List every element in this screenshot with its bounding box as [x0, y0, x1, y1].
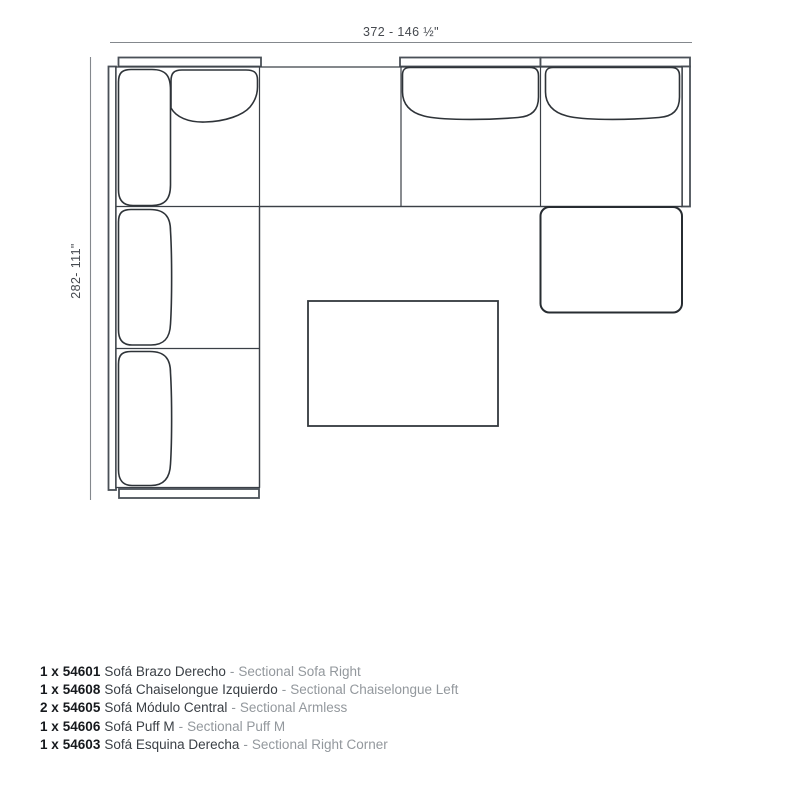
- left-module-back-cushion-1: [119, 210, 172, 346]
- part-name-en: Sectional Puff M: [187, 719, 285, 734]
- part-separator: -: [179, 719, 184, 734]
- part-name-en: Sectional Right Corner: [252, 737, 388, 752]
- corner-module-back-frame: [119, 58, 262, 67]
- part-name-en: Sectional Armless: [240, 700, 347, 715]
- part-name-es: Sofá Esquina Derecha: [104, 737, 239, 752]
- part-separator: -: [231, 700, 236, 715]
- chaiselongue-module-back-frame: [541, 58, 691, 67]
- part-separator: -: [282, 682, 287, 697]
- part-qty: 2 x: [40, 700, 59, 715]
- part-list-item: 2 x54605Sofá Módulo Central-Sectional Ar…: [40, 699, 462, 717]
- part-list-item: 1 x54603Sofá Esquina Derecha-Sectional R…: [40, 736, 462, 754]
- chaiselongue-seat-extension: [541, 207, 683, 313]
- part-list-item: 1 x54606Sofá Puff M-Sectional Puff M: [40, 718, 462, 736]
- right-side-frame: [682, 67, 690, 207]
- part-qty: 1 x: [40, 719, 59, 734]
- part-code: 54603: [63, 737, 101, 752]
- parts-list: 1 x54601Sofá Brazo Derecho-Sectional Sof…: [40, 663, 462, 754]
- top-dimension-label: 372 - 146 ½": [363, 25, 439, 39]
- left-module-back-cushion-2: [119, 352, 172, 486]
- part-code: 54606: [63, 719, 101, 734]
- sofa-top-view-diagram: 372 - 146 ½" 282- 111": [0, 0, 800, 560]
- part-name-en: Sectional Chaiselongue Left: [290, 682, 458, 697]
- part-qty: 1 x: [40, 682, 59, 697]
- chaiselongue-module-back-cushion: [546, 68, 680, 120]
- part-code: 54605: [63, 700, 101, 715]
- part-name-en: Sectional Sofa Right: [238, 664, 360, 679]
- left-side-back-frame: [109, 67, 117, 491]
- part-code: 54608: [63, 682, 101, 697]
- part-name-es: Sofá Puff M: [104, 719, 174, 734]
- part-list-item: 1 x54608Sofá Chaiselongue Izquierdo-Sect…: [40, 681, 462, 699]
- part-qty: 1 x: [40, 737, 59, 752]
- part-code: 54601: [63, 664, 101, 679]
- armless-module-back-frame: [400, 58, 541, 67]
- part-separator: -: [230, 664, 235, 679]
- part-name-es: Sofá Brazo Derecho: [104, 664, 226, 679]
- sofa-spec-sheet: 372 - 146 ½" 282- 111": [0, 0, 800, 800]
- part-list-item: 1 x54601Sofá Brazo Derecho-Sectional Sof…: [40, 663, 462, 681]
- part-qty: 1 x: [40, 664, 59, 679]
- armless-module-back-cushion: [403, 68, 539, 120]
- corner-left-back-cushion: [119, 70, 171, 206]
- part-name-es: Sofá Chaiselongue Izquierdo: [104, 682, 277, 697]
- bottom-arm-frame: [119, 489, 259, 498]
- left-dimension-label: 282- 111": [69, 243, 83, 299]
- part-name-es: Sofá Módulo Central: [104, 700, 227, 715]
- part-separator: -: [243, 737, 248, 752]
- puff-module: [308, 301, 498, 426]
